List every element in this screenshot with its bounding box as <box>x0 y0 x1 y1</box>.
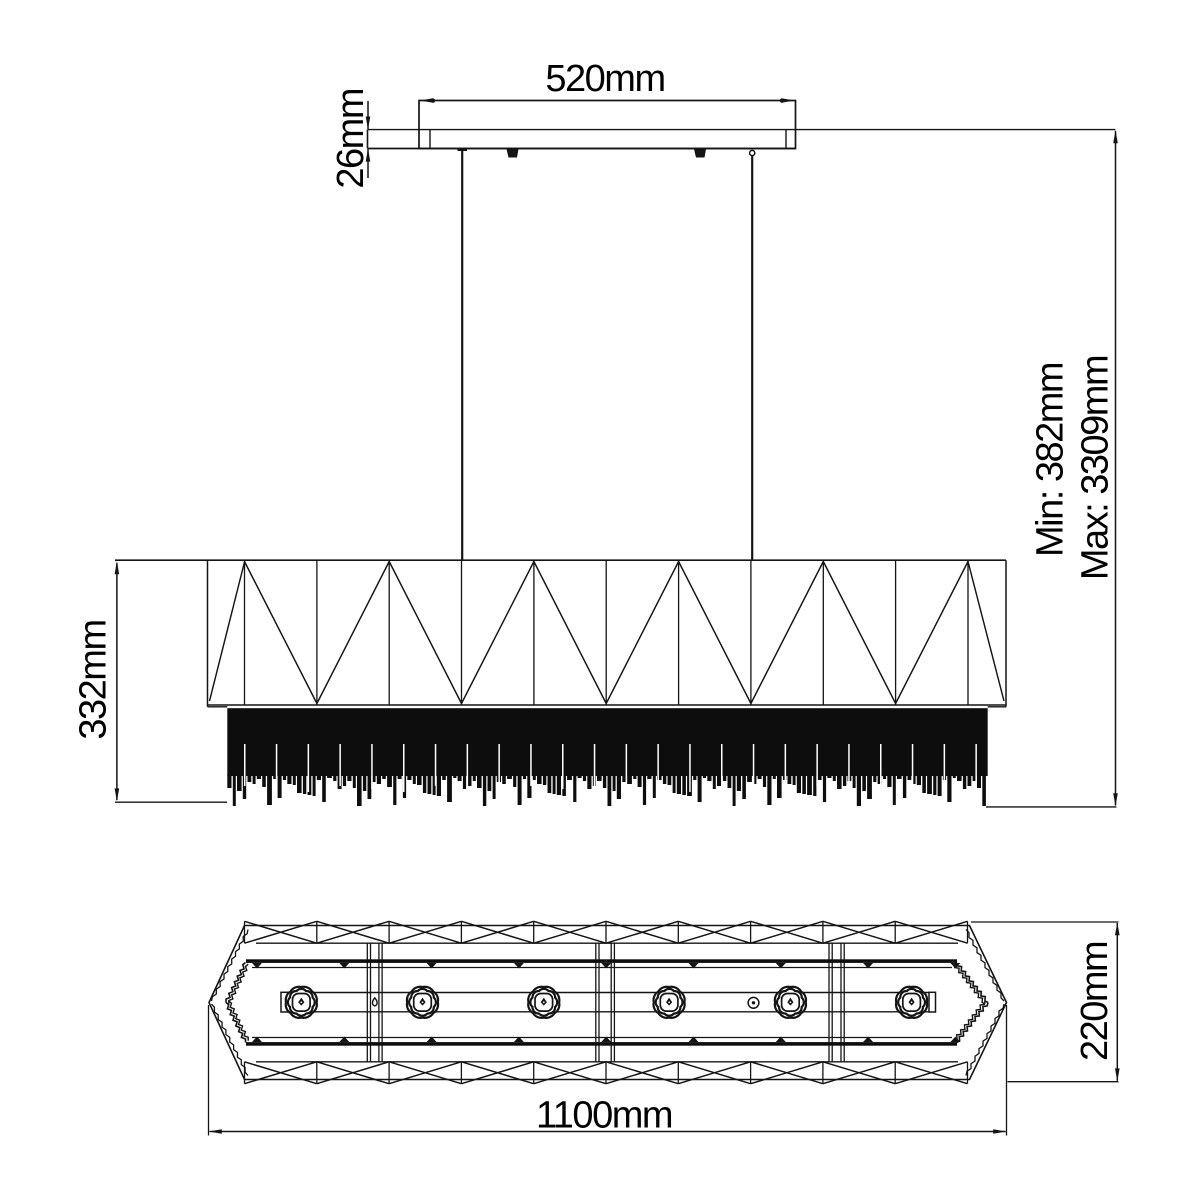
svg-text:26mm: 26mm <box>330 89 372 189</box>
svg-text:1100mm: 1100mm <box>536 1095 672 1137</box>
svg-text:332mm: 332mm <box>73 620 115 739</box>
svg-text:520mm: 520mm <box>545 58 664 100</box>
svg-text:220mm: 220mm <box>1074 942 1116 1061</box>
svg-text:Max: 3309mm: Max: 3309mm <box>1074 356 1116 580</box>
svg-text:Min: 382mm: Min: 382mm <box>1030 363 1072 557</box>
